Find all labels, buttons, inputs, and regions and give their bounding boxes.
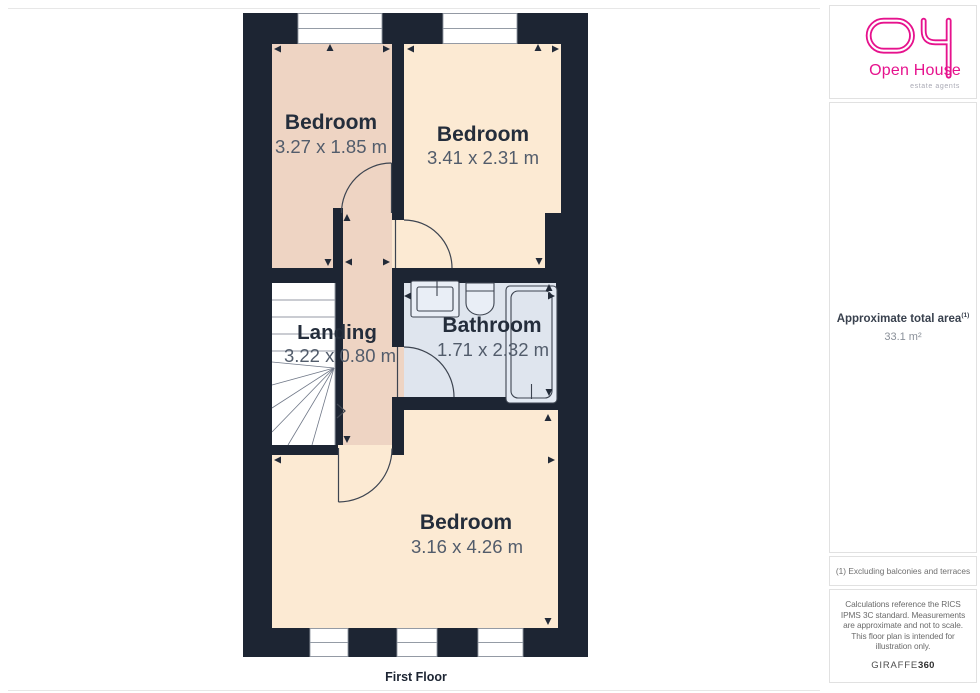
bathroom-label: Bathroom — [442, 314, 541, 337]
landing-label: Landing — [297, 321, 377, 344]
info-sidebar: Open House estate agents Approximate tot… — [829, 0, 977, 693]
total-area-text: Approximate total area — [837, 312, 962, 324]
disclaimer-text: Calculations reference the RICS IPMS 3C … — [838, 599, 968, 652]
footnote-text: (1) Excluding balconies and terraces — [836, 566, 970, 576]
bedroom-1-dims: 3.27 x 1.85 m — [275, 136, 387, 157]
disclaimer-panel: Calculations reference the RICS IPMS 3C … — [829, 589, 977, 683]
giraffe-360-text: 360 — [918, 660, 935, 671]
bedroom-2-label: Bedroom — [437, 123, 529, 146]
agency-name: Open House — [869, 62, 961, 80]
floor-title: First Floor — [385, 670, 447, 684]
bedroom-3-floor-upper — [404, 410, 558, 457]
total-area-panel: Approximate total area(1) 33.1 m² — [829, 102, 977, 553]
giraffe360-brand: GIRAFFE360 — [838, 660, 968, 671]
bedroom-2-dims: 3.41 x 2.31 m — [427, 147, 539, 168]
bedroom-1-label: Bedroom — [285, 111, 377, 134]
bedroom-3-door-gap — [338, 445, 392, 457]
agency-tagline: estate agents — [910, 83, 960, 90]
landing-floor — [343, 44, 392, 448]
bedroom-2-door-gap — [392, 220, 404, 268]
bedroom-2-floor-lower — [404, 213, 545, 268]
total-area-label: Approximate total area(1) — [837, 312, 970, 325]
bottom-divider — [8, 690, 820, 691]
landing-dims: 3.22 x 0.80 m — [284, 345, 396, 366]
footnote-panel: (1) Excluding balconies and terraces — [829, 556, 977, 586]
toilet — [466, 283, 494, 315]
floor-plan-page: Bedroom 3.27 x 1.85 m Bedroom 3.41 x 2.3… — [0, 0, 980, 693]
sink — [411, 281, 459, 317]
footnote-ref: (1) — [961, 312, 969, 319]
bedroom-3-label: Bedroom — [420, 511, 512, 534]
floor-plan-drawing: Bedroom 3.27 x 1.85 m Bedroom 3.41 x 2.3… — [0, 0, 826, 693]
top-divider — [8, 8, 820, 9]
stub-wall — [333, 208, 343, 283]
giraffe-text: GIRAFFE — [871, 660, 918, 671]
bathroom-dims: 1.71 x 2.32 m — [437, 339, 549, 360]
bedroom-3-dims: 3.16 x 4.26 m — [411, 536, 523, 557]
total-area-value: 33.1 m² — [884, 331, 921, 343]
agency-logo-panel: Open House estate agents — [829, 5, 977, 99]
